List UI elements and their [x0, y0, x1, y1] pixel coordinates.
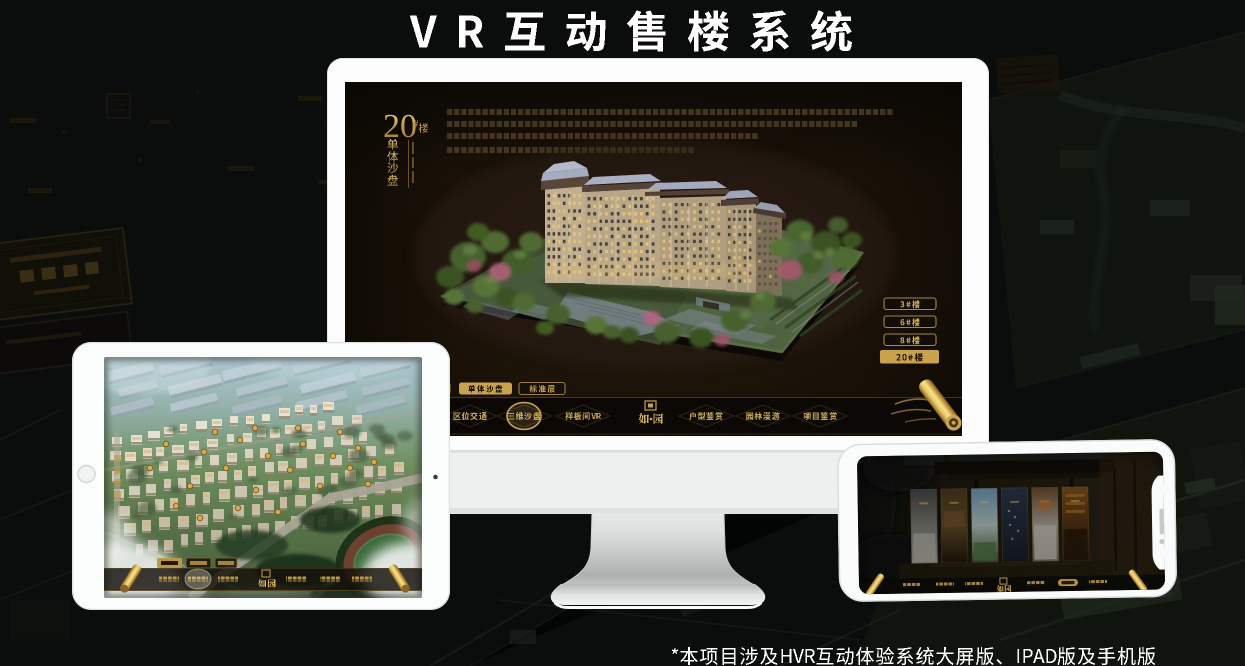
- svg-text:#: #: [413, 118, 419, 130]
- svg-text:20: 20: [383, 108, 417, 145]
